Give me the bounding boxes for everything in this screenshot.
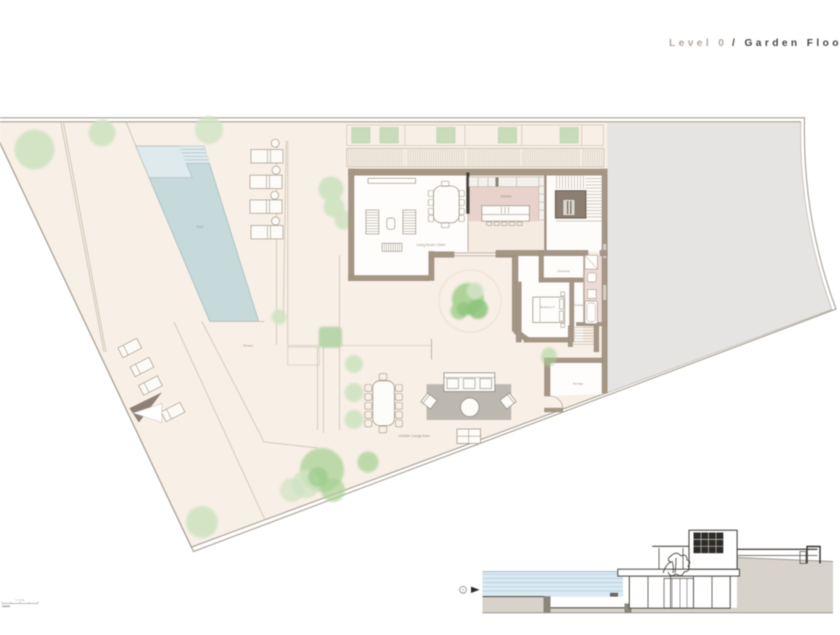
svg-text:Bedroom 6: Bedroom 6 (540, 305, 555, 309)
svg-text:Level 0: Level 0 (669, 38, 727, 49)
svg-text:Terrace: Terrace (243, 344, 253, 348)
svg-text:Storage: Storage (573, 382, 584, 386)
svg-text:0 1 2 5m: 0 1 2 5m (15, 599, 24, 602)
svg-text:Outside Lounge Area: Outside Lounge Area (399, 434, 430, 438)
svg-text:/ Garden Floor: / Garden Floor (732, 38, 840, 49)
svg-text:Kitchen: Kitchen (501, 195, 512, 199)
svg-text:Pool: Pool (197, 225, 204, 229)
svg-text:Ensuite: Ensuite (575, 303, 584, 307)
svg-text:Living Room / Diner: Living Room / Diner (417, 243, 447, 247)
svg-text:0: 0 (462, 588, 464, 592)
svg-text:Dressing: Dressing (558, 269, 570, 273)
